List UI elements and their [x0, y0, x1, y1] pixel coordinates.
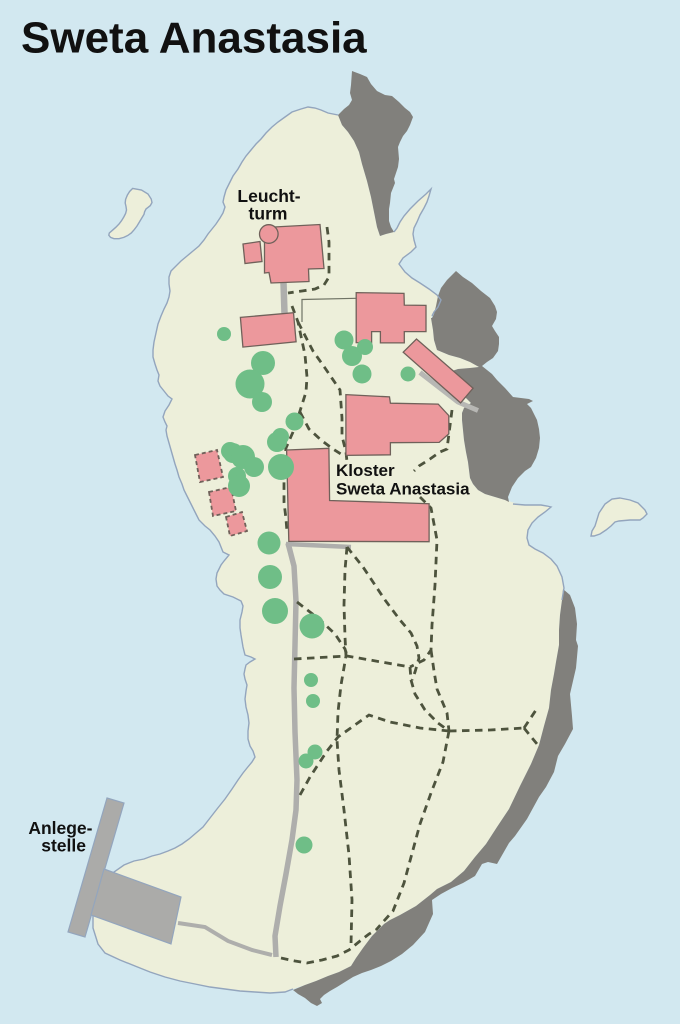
svg-text:Sweta Anastasia: Sweta Anastasia: [336, 480, 470, 499]
svg-text:Sweta Anastasia: Sweta Anastasia: [21, 14, 367, 63]
svg-text:turm: turm: [249, 204, 288, 224]
svg-text:stelle: stelle: [41, 836, 86, 856]
svg-text:Kloster: Kloster: [336, 461, 395, 480]
